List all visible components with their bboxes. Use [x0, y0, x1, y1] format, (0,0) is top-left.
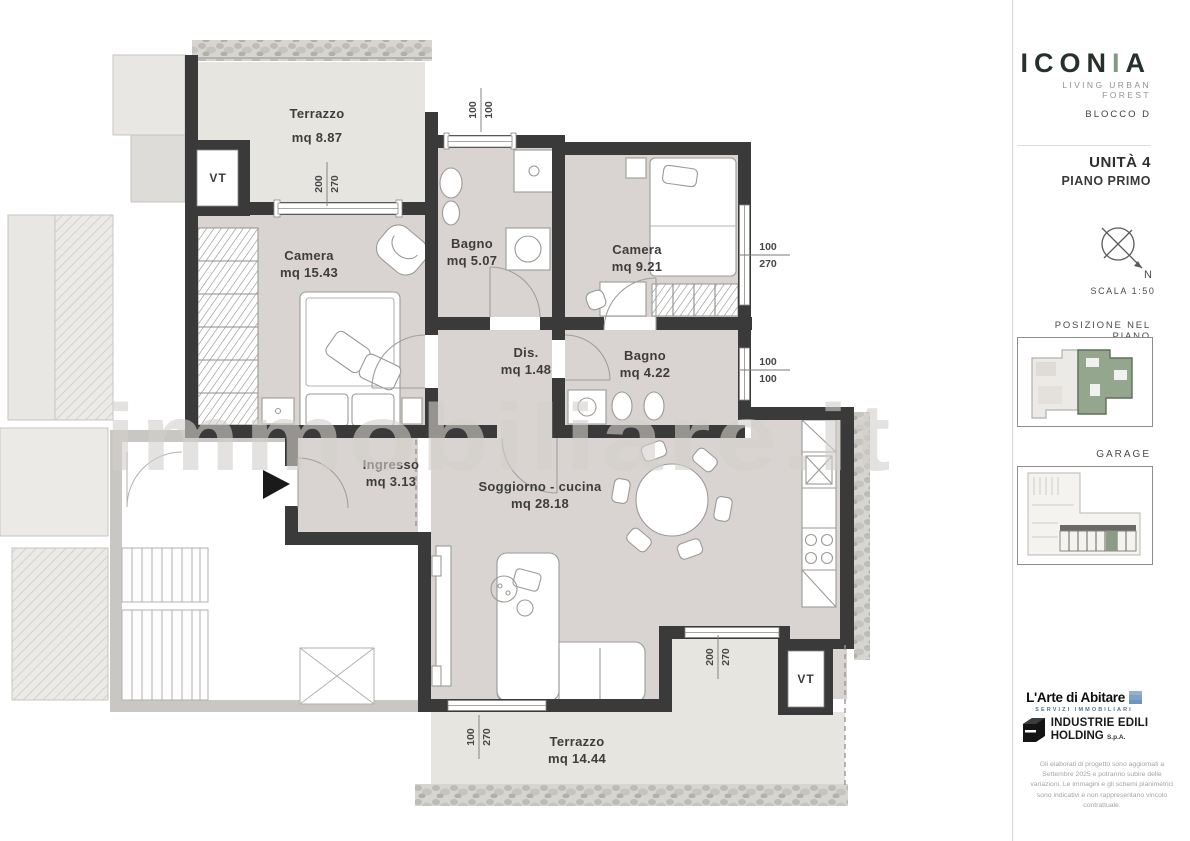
nightstand [626, 158, 646, 178]
position-thumbnail [1017, 337, 1153, 427]
unit-info: UNITÀ 4 PIANO PRIMO [1017, 154, 1151, 188]
floor-terrazzo-2 [431, 712, 845, 788]
builder-logo: INDUSTRIE EDILI HOLDING S.p.A. [1017, 716, 1151, 743]
brand-logo: ICONIA LIVING URBAN FOREST [1017, 50, 1151, 100]
floorplan-sheet: VT VT Terrazzomq 8.87 Cameramq 15.43 Bag… [0, 0, 1190, 841]
divider [1017, 145, 1151, 146]
agency-square-icon [1129, 691, 1142, 704]
brand-tagline: LIVING URBAN FOREST [1017, 80, 1151, 100]
svg-text:100: 100 [465, 728, 477, 746]
floor-plan: VT VT Terrazzomq 8.87 Cameramq 15.43 Bag… [0, 0, 1010, 841]
north-label: N [1144, 269, 1152, 281]
builder-name-line2: HOLDING [1051, 730, 1104, 742]
brand-name: ICON [1020, 48, 1112, 78]
svg-text:270: 270 [329, 175, 341, 193]
builder-cube-icon [1020, 716, 1046, 743]
washbasin [440, 168, 462, 198]
compass-icon: N [1092, 220, 1156, 282]
block-label: BLOCCO D [1017, 109, 1151, 120]
svg-text:270: 270 [759, 258, 777, 270]
disclaimer-text: Gli elaborati di progetto sono aggiornat… [1027, 760, 1177, 811]
svg-text:100: 100 [759, 373, 777, 385]
agency-name: L'Arte di Abitare [1026, 690, 1125, 705]
svg-text:100: 100 [759, 241, 777, 253]
builder-suffix: S.p.A. [1107, 734, 1125, 741]
toilet [443, 201, 460, 225]
garage-thumbnail [1017, 466, 1153, 565]
elevator [300, 648, 374, 704]
garage-heading: GARAGE [1017, 449, 1151, 460]
svg-text:270: 270 [720, 648, 732, 666]
info-sidebar: ICONIA LIVING URBAN FOREST BLOCCO D UNIT… [1012, 0, 1190, 841]
svg-text:200: 200 [313, 175, 325, 193]
garage-highlight-stall [1106, 531, 1117, 551]
agency-logo: L'Arte di Abitare SERVIZI IMMOBILIARI [1017, 690, 1151, 713]
svg-text:100: 100 [759, 356, 777, 368]
single-bed [650, 158, 736, 276]
unit-title: UNITÀ 4 [1017, 154, 1151, 171]
vt-label: VT [797, 672, 814, 686]
svg-text:200: 200 [704, 648, 716, 666]
agency-tagline: SERVIZI IMMOBILIARI [1017, 707, 1151, 713]
floor-label: PIANO PRIMO [1017, 174, 1151, 188]
watermark-text: immobiliare.it [105, 385, 895, 491]
builder-name-line1: INDUSTRIE EDILI [1051, 717, 1149, 729]
svg-text:100: 100 [467, 101, 479, 119]
svg-text:100: 100 [483, 101, 495, 119]
wardrobe [652, 284, 738, 316]
shower [514, 150, 554, 192]
vt-label: VT [209, 171, 226, 185]
washing-machine [506, 228, 550, 270]
svg-text:270: 270 [481, 728, 493, 746]
scale-label: SCALA 1:50 [1053, 286, 1190, 296]
